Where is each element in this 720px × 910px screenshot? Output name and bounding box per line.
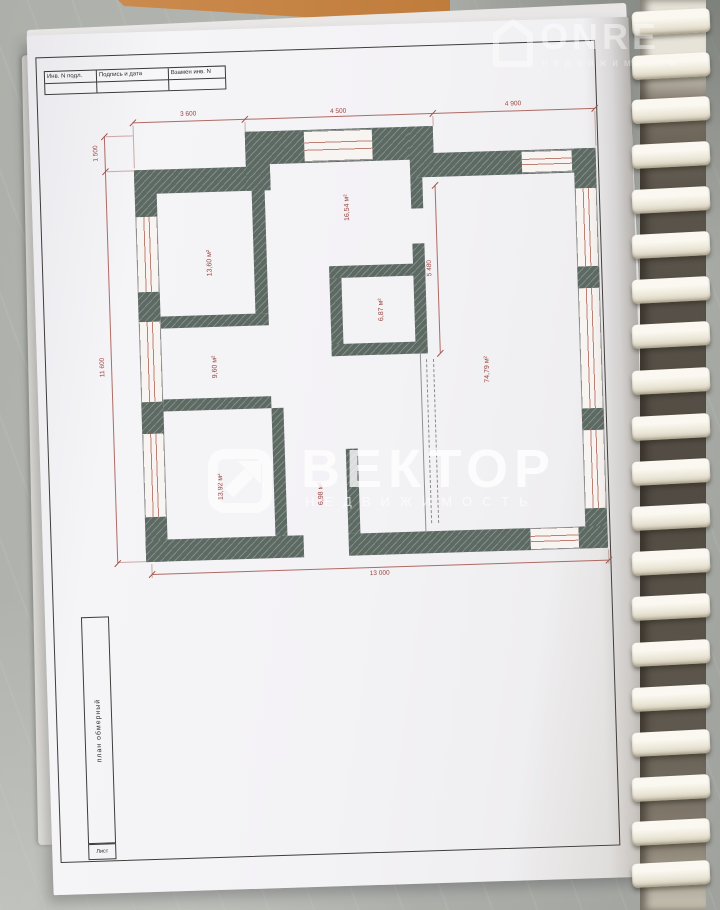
binding-ring — [631, 818, 710, 846]
window — [135, 217, 159, 293]
dimension-label: 4 900 — [505, 100, 521, 108]
binding-shadow-gap — [640, 0, 706, 910]
binding-ring — [631, 276, 710, 304]
binding-ring — [631, 8, 710, 36]
binding-ring — [631, 367, 710, 395]
binding-ring — [631, 413, 710, 441]
plan-name-label: план обмерный — [94, 698, 103, 762]
interior-wall — [410, 177, 423, 208]
binding-ring — [631, 860, 710, 888]
dimension-label: 11 600 — [99, 358, 107, 378]
binding-ring — [631, 231, 710, 259]
dimension-label: 1 500 — [92, 145, 100, 161]
window — [139, 322, 164, 403]
room-area-label: 74,79 м² — [483, 356, 491, 383]
binding-ring — [631, 321, 710, 349]
binding-ring — [631, 729, 710, 757]
room-area-label: 16,54 м² — [343, 194, 351, 221]
room-area-label: 6,87 м² — [378, 298, 386, 321]
binding-ring — [631, 458, 710, 486]
room-area-label: 9,60 м² — [211, 355, 219, 378]
photo-scene: Инв. N подл. Подпись и дата Взамен инв. … — [0, 0, 720, 910]
binding-ring — [631, 684, 710, 712]
room-area-label: 6,98 м² — [317, 482, 325, 505]
room-area-label: 13,92 м² — [217, 473, 225, 500]
drawing-sheet: Инв. N подл. Подпись и дата Взамен инв. … — [27, 17, 656, 895]
wall-segment — [138, 292, 161, 323]
window — [530, 527, 579, 550]
binding-ring — [631, 186, 710, 214]
wall-segment — [245, 131, 271, 191]
dimension-label: 13 000 — [370, 570, 390, 578]
wall-segment — [141, 402, 164, 435]
binding-ring — [631, 593, 710, 621]
wall-segment — [134, 170, 157, 218]
binding-ring — [631, 503, 710, 531]
binding-ring — [631, 96, 710, 124]
binding-ring — [631, 52, 710, 80]
title-block-sheet: Лист — [88, 843, 116, 860]
binding-ring — [631, 639, 710, 667]
window — [142, 434, 167, 518]
wall-segment — [409, 126, 435, 178]
dimension-label: 5 480 — [426, 260, 434, 276]
binding-ring — [631, 548, 710, 576]
binding-ring — [631, 774, 710, 802]
binding-ring — [631, 141, 710, 169]
sheet-label: Лист — [96, 849, 108, 855]
dimension-label: 3 600 — [180, 110, 196, 118]
room-area-label: 13,60 м² — [206, 250, 214, 277]
dimension-label: 4 500 — [330, 108, 346, 116]
window — [522, 150, 573, 174]
window — [304, 129, 373, 162]
